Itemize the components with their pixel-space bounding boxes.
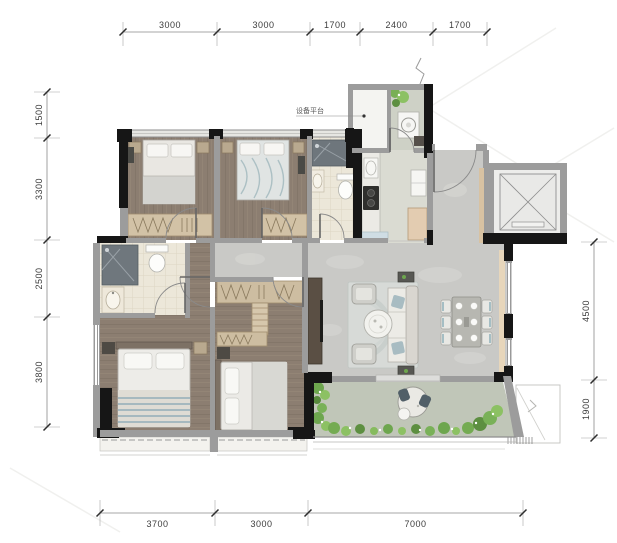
wardrobe-icon: [217, 281, 306, 303]
kitchen-sink-icon: [364, 158, 378, 178]
foyer-floor: [427, 150, 487, 245]
wall-cabinet-icon: [128, 147, 134, 163]
bay-windows: [100, 437, 307, 455]
cooktop-icon: [363, 186, 379, 210]
nightstand-icon: [293, 142, 304, 153]
dim-label-bottom-0: 3700: [146, 519, 168, 529]
nightstand-icon: [197, 142, 209, 153]
nightstand-icon: [194, 342, 207, 354]
equipment-platform-label: 设备平台: [296, 106, 324, 115]
floor-plan-page: 设备平台: [0, 0, 617, 543]
tv-console-icon: [308, 278, 323, 364]
washbasin-icon: [102, 287, 124, 313]
dim-label-right-1: 1900: [581, 398, 591, 420]
fridge-icon: [411, 170, 426, 196]
toilet-icon: [337, 174, 354, 199]
dim-label-top-1: 3000: [252, 20, 274, 30]
nightstand-icon: [217, 347, 230, 359]
washbasin-icon: [311, 170, 324, 192]
wardrobe-icon: [128, 214, 212, 236]
shower-icon: [102, 245, 138, 285]
bed-icon: [116, 342, 192, 427]
dim-label-top-3: 2400: [385, 20, 407, 30]
dim-label-top-0: 3000: [159, 20, 181, 30]
washing-machine-icon: [398, 112, 419, 138]
wall-cabinet-icon: [298, 156, 305, 174]
break-line-symbol: [416, 58, 424, 84]
dim-label-top-2: 1700: [324, 20, 346, 30]
dim-label-left-3: 3800: [34, 361, 44, 383]
coffee-table-icon: [364, 310, 392, 338]
dim-label-bottom-1: 3000: [250, 519, 272, 529]
bed-icon: [143, 140, 195, 204]
nightstand-icon: [222, 142, 233, 153]
nightstand-icon: [102, 342, 115, 354]
elevator-shaft: [500, 174, 556, 230]
sofa-icon: [388, 286, 418, 364]
dim-label-bottom-2: 7000: [404, 519, 426, 529]
closet-shelf-icon: [252, 303, 268, 335]
bed-icon: [215, 360, 287, 432]
floor-plan-drawing: 设备平台: [0, 0, 617, 543]
wardrobe-icon: [217, 332, 267, 346]
dim-label-left-2: 2500: [34, 267, 44, 289]
wardrobe-icon: [262, 214, 307, 236]
dim-label-left-0: 1500: [34, 104, 44, 126]
dining-table-icon: [452, 297, 481, 347]
water-heater-icon: [414, 136, 424, 146]
armchair-icon: [352, 284, 376, 304]
dining-set: [441, 297, 492, 347]
armchair-icon: [352, 344, 376, 364]
bed-icon: [237, 140, 289, 200]
dim-label-left-1: 3300: [34, 178, 44, 200]
dim-label-right-0: 4500: [581, 300, 591, 322]
dim-label-top-4: 1700: [449, 20, 471, 30]
kitchen-cabinet: [408, 208, 427, 240]
